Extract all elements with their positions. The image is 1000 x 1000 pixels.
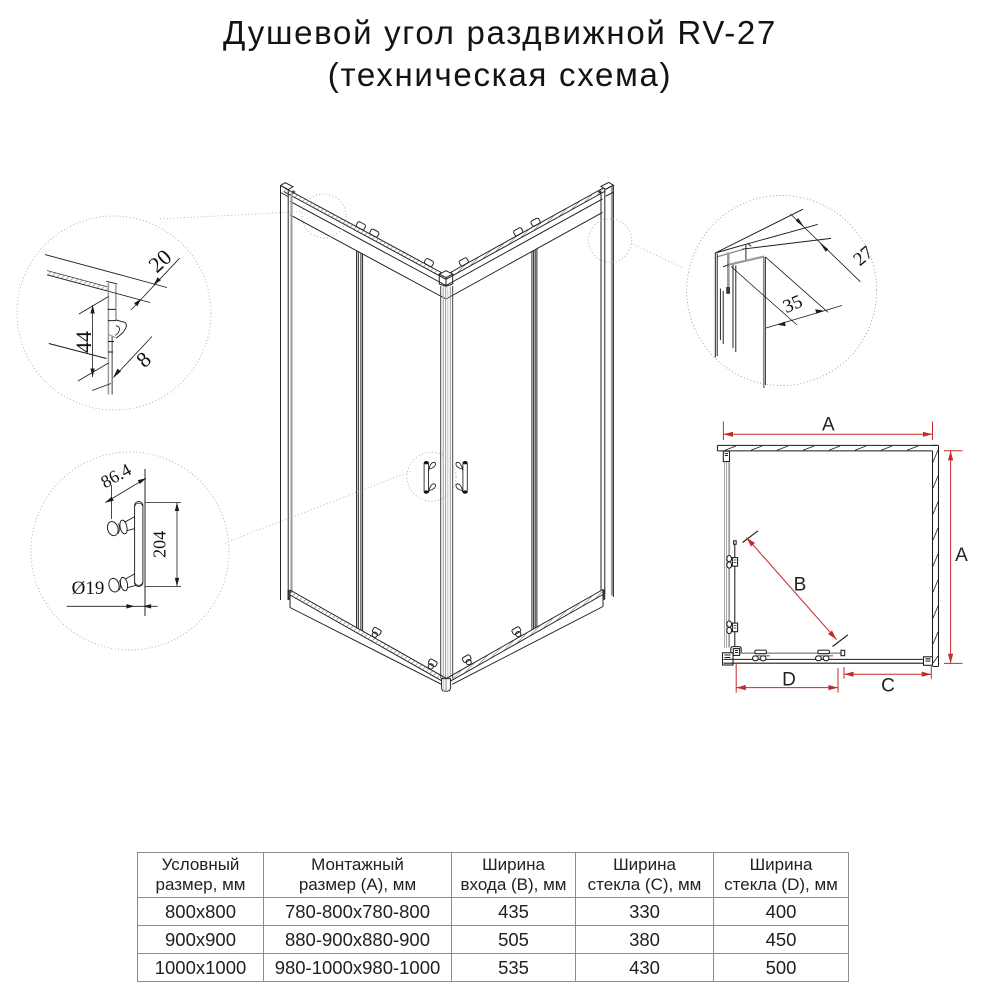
svg-text:Ø19: Ø19 [72,578,105,599]
svg-text:B: B [794,575,807,596]
svg-text:C: C [881,676,895,697]
svg-text:204: 204 [150,531,170,558]
svg-text:A: A [822,415,835,436]
svg-text:44: 44 [71,331,96,353]
svg-text:8: 8 [131,346,156,372]
svg-text:86.4: 86.4 [97,459,134,492]
svg-text:A: A [955,545,968,566]
svg-text:20: 20 [143,244,176,277]
svg-text:D: D [782,670,796,691]
